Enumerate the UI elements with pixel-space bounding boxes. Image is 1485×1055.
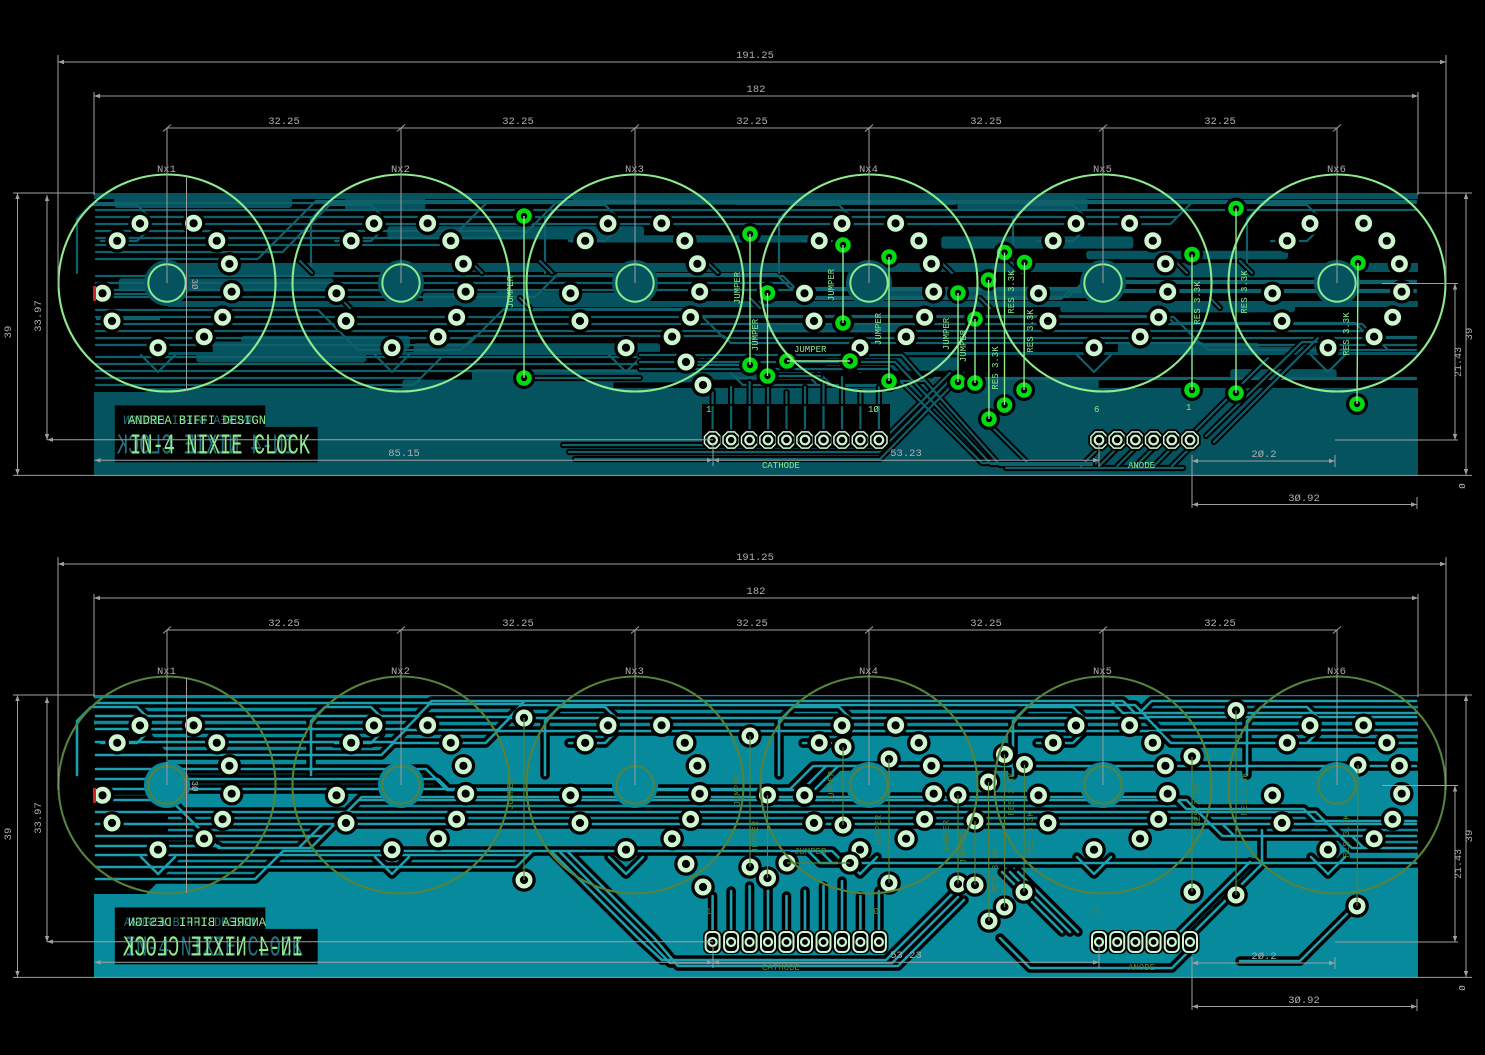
svg-text:JUMPER: JUMPER (794, 345, 827, 355)
svg-text:21.43: 21.43 (1454, 347, 1465, 377)
svg-text:39: 39 (1464, 830, 1476, 843)
svg-text:1: 1 (1186, 403, 1191, 413)
svg-text:RES 3.3K: RES 3.3K (1007, 270, 1017, 314)
svg-text:32.25: 32.25 (1204, 618, 1236, 630)
svg-text:32.25: 32.25 (268, 116, 300, 128)
svg-text:6: 6 (1094, 907, 1099, 917)
svg-text:1: 1 (1186, 905, 1191, 915)
svg-text:JUMPER: JUMPER (959, 329, 969, 362)
svg-text:2Ø.2: 2Ø.2 (1251, 449, 1276, 461)
svg-text:32.25: 32.25 (268, 618, 300, 630)
svg-text:Nx5: Nx5 (1093, 164, 1112, 176)
svg-text:RES 3.3K: RES 3.3K (1193, 281, 1203, 325)
svg-text:RES 3.3K: RES 3.3K (1026, 309, 1036, 353)
svg-text:JUMPER: JUMPER (959, 831, 969, 864)
svg-text:RES 3.3K: RES 3.3K (1193, 783, 1203, 827)
svg-text:JUMPER: JUMPER (794, 847, 827, 857)
svg-text:32.25: 32.25 (970, 618, 1002, 630)
svg-text:ANDREA BIFFI DESIGN: ANDREA BIFFI DESIGN (128, 916, 266, 930)
svg-text:Nx3: Nx3 (625, 666, 644, 678)
svg-text:32.25: 32.25 (970, 116, 1002, 128)
svg-text:3Ø.92: 3Ø.92 (1288, 995, 1320, 1007)
svg-text:3Ø: 3Ø (189, 781, 199, 792)
svg-text:Ø: Ø (1458, 483, 1468, 489)
svg-text:JUMPER: JUMPER (751, 820, 761, 853)
svg-text:21.43: 21.43 (1454, 849, 1465, 879)
svg-text:53.23: 53.23 (890, 950, 922, 962)
svg-text:32.25: 32.25 (736, 116, 768, 128)
svg-text:32.25: 32.25 (502, 618, 534, 630)
svg-text:IN-4 NIXIE CLOCK: IN-4 NIXIE CLOCK (130, 430, 310, 463)
svg-text:CATHODE: CATHODE (762, 963, 800, 973)
svg-text:JUMPER: JUMPER (942, 819, 952, 852)
svg-text:1: 1 (706, 405, 711, 415)
svg-text:ANODE: ANODE (1128, 963, 1155, 973)
svg-text:39: 39 (3, 828, 15, 841)
svg-text:Ø: Ø (1458, 985, 1468, 991)
svg-text:Nx4: Nx4 (859, 666, 878, 678)
svg-text:Nx2: Nx2 (391, 666, 410, 678)
svg-text:39: 39 (1464, 328, 1476, 341)
svg-text:RES 3.3K: RES 3.3K (1240, 270, 1250, 314)
svg-text:RES 3.3K: RES 3.3K (991, 346, 1001, 390)
svg-text:3Ø.92: 3Ø.92 (1288, 493, 1320, 505)
svg-text:ANDREA BIFFI DESIGN: ANDREA BIFFI DESIGN (128, 414, 266, 428)
svg-text:1Ø: 1Ø (868, 907, 879, 917)
svg-text:RES 3.3K: RES 3.3K (1007, 772, 1017, 816)
svg-text:JUMPER: JUMPER (506, 777, 516, 810)
svg-text:2Ø.2: 2Ø.2 (1251, 951, 1276, 963)
svg-text:RES 3.3K: RES 3.3K (1026, 811, 1036, 855)
svg-text:3Ø: 3Ø (189, 279, 199, 290)
svg-text:32.25: 32.25 (1204, 116, 1236, 128)
svg-text:JUMPER: JUMPER (733, 271, 743, 304)
svg-text:RES 3.3K: RES 3.3K (991, 848, 1001, 892)
svg-text:33.97: 33.97 (33, 300, 45, 332)
svg-text:182: 182 (747, 586, 766, 598)
svg-text:Nx2: Nx2 (391, 164, 410, 176)
svg-text:Nx6: Nx6 (1327, 666, 1346, 678)
svg-text:53.23: 53.23 (890, 448, 922, 460)
svg-text:Nx6: Nx6 (1327, 164, 1346, 176)
svg-text:39: 39 (3, 326, 15, 339)
svg-text:RES 3.3K: RES 3.3K (1342, 814, 1352, 858)
svg-text:1: 1 (706, 907, 711, 917)
svg-text:191.25: 191.25 (736, 552, 774, 564)
svg-text:JUMPER: JUMPER (827, 770, 837, 803)
svg-text:32.25: 32.25 (736, 618, 768, 630)
svg-text:ANODE: ANODE (1128, 461, 1155, 471)
svg-text:JUMPER: JUMPER (733, 773, 743, 806)
svg-text:Nx1: Nx1 (157, 666, 176, 678)
svg-text:RES 3.3K: RES 3.3K (1342, 312, 1352, 356)
svg-text:85.15: 85.15 (388, 448, 420, 460)
svg-text:CATHODE: CATHODE (762, 461, 800, 471)
svg-text:JUMPER: JUMPER (751, 318, 761, 351)
svg-text:JUMPER: JUMPER (827, 268, 837, 301)
svg-text:Nx5: Nx5 (1093, 666, 1112, 678)
svg-text:33.97: 33.97 (33, 802, 45, 834)
svg-text:JUMPER: JUMPER (874, 312, 884, 345)
svg-text:JUMPER: JUMPER (506, 275, 516, 308)
svg-text:JUMPER: JUMPER (874, 814, 884, 847)
svg-text:1Ø: 1Ø (868, 405, 879, 415)
svg-text:Nx3: Nx3 (625, 164, 644, 176)
svg-text:JUMPER: JUMPER (942, 317, 952, 350)
svg-text:RES 3.3K: RES 3.3K (1240, 772, 1250, 816)
svg-text:191.25: 191.25 (736, 50, 774, 62)
svg-text:32.25: 32.25 (502, 116, 534, 128)
svg-text:182: 182 (747, 84, 766, 96)
svg-text:6: 6 (1094, 405, 1099, 415)
svg-text:IN-4 NIXIE CLOCK: IN-4 NIXIE CLOCK (123, 932, 303, 965)
svg-text:Nx4: Nx4 (859, 164, 878, 176)
svg-text:Nx1: Nx1 (157, 164, 176, 176)
